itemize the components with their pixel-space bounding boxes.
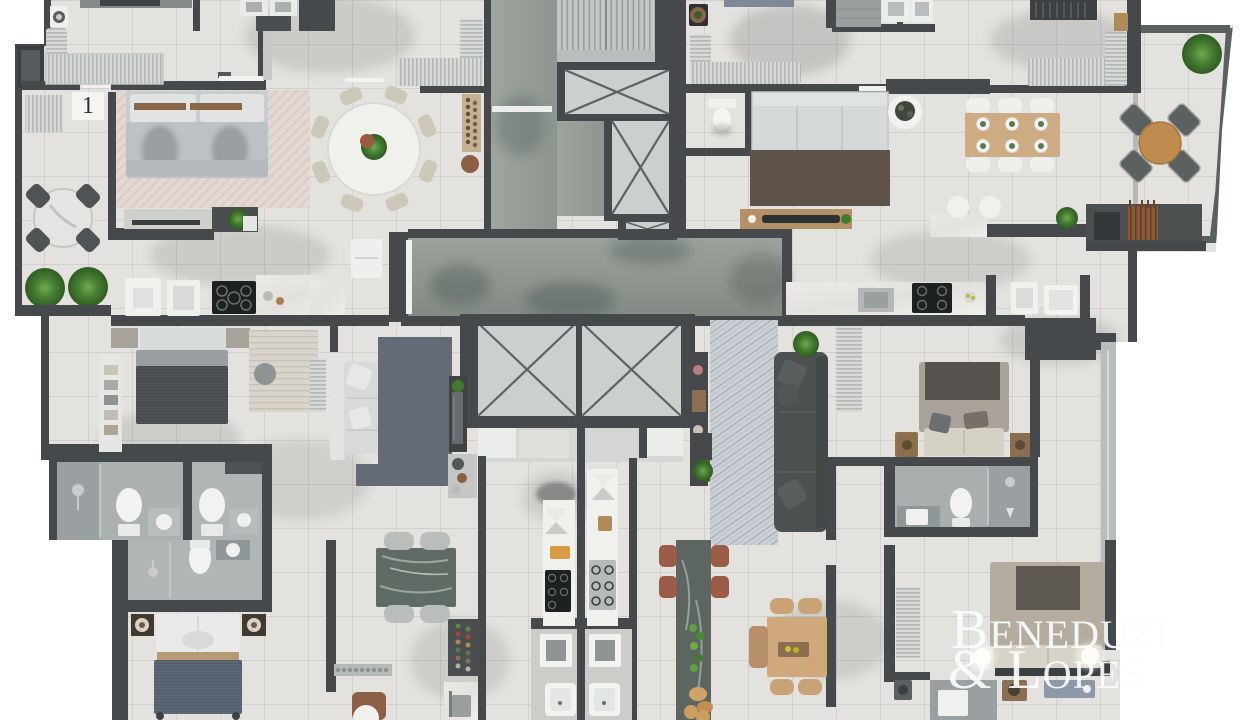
svg-text:1: 1 xyxy=(82,93,94,119)
